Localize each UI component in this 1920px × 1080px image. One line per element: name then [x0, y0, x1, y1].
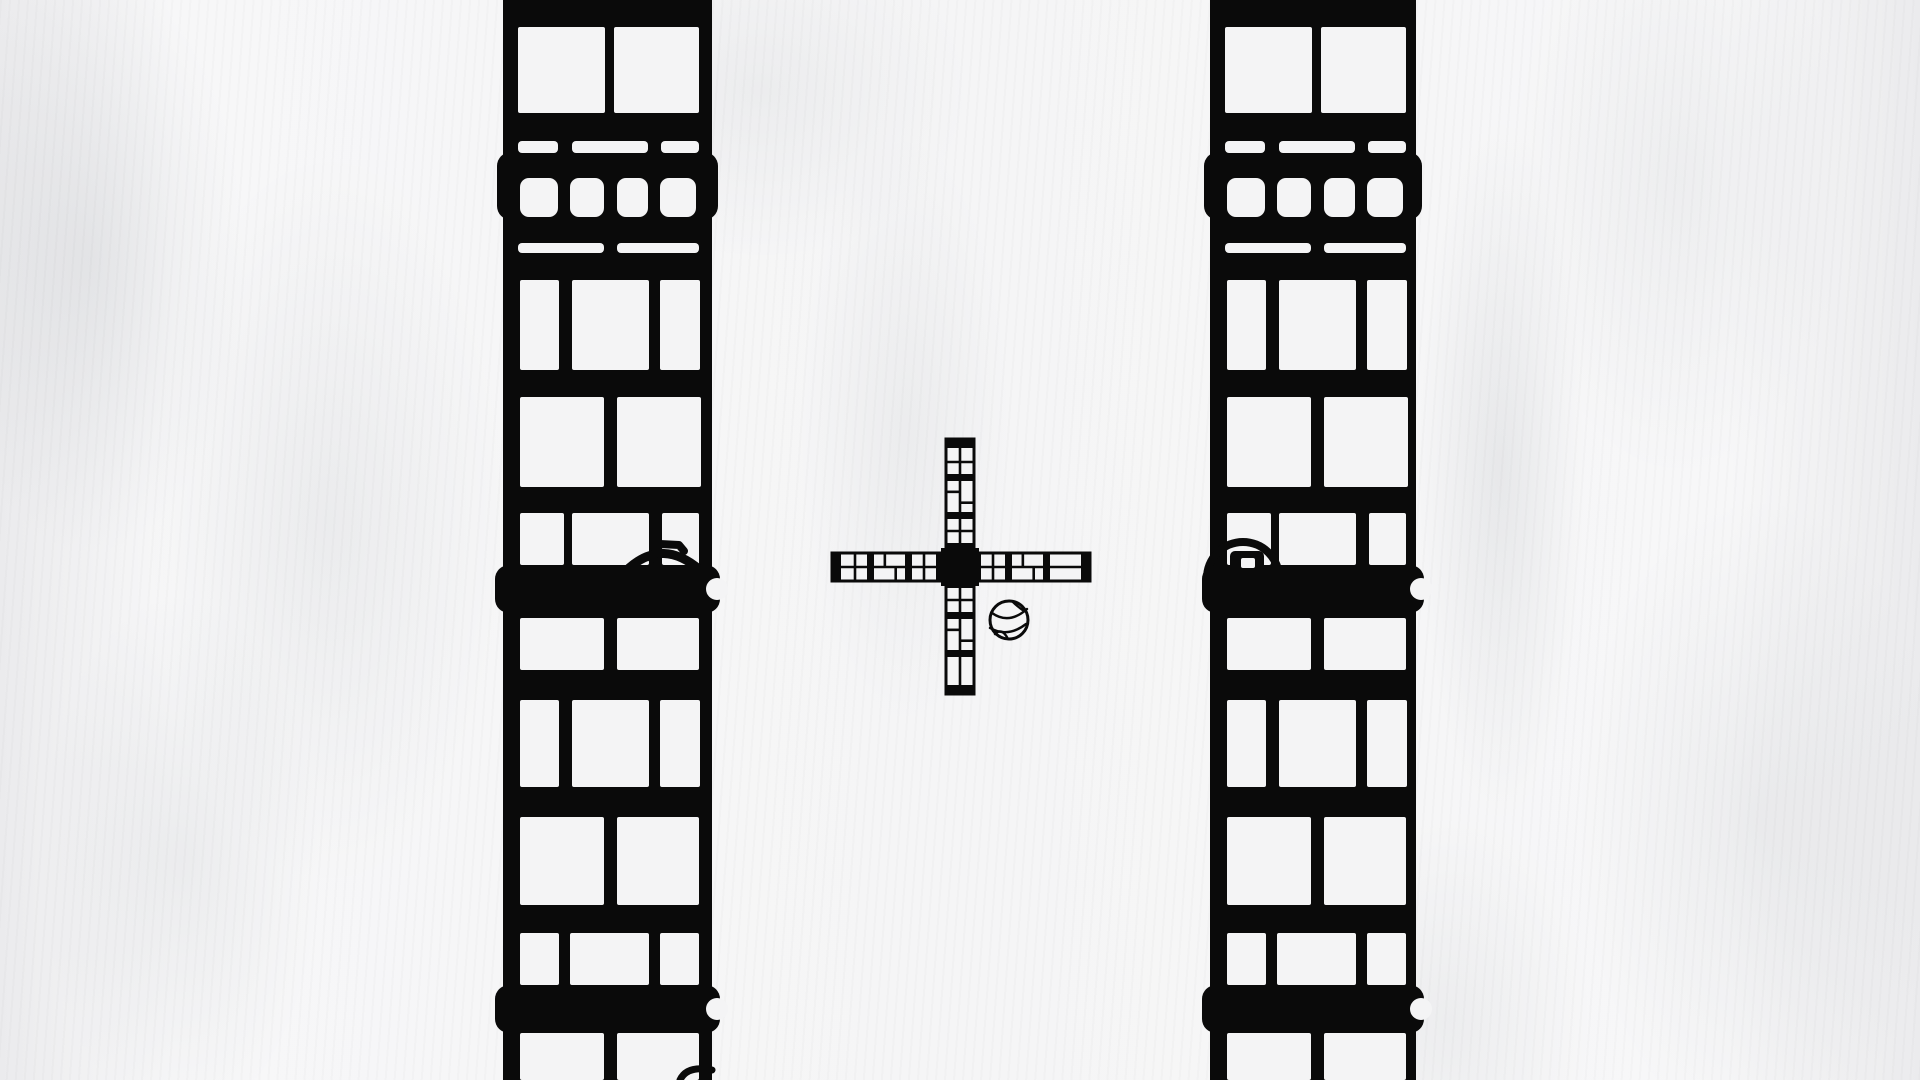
- right-tower-window: [1227, 280, 1266, 370]
- left-tower-window: [660, 933, 699, 985]
- left-tower-ledge-notch: [706, 578, 728, 600]
- right-tower-window: [1279, 280, 1356, 370]
- right-tower-window: [1321, 27, 1406, 113]
- right-tower-window: [1324, 243, 1406, 253]
- left-tower-window: [572, 280, 649, 370]
- right-tower-window: [1227, 933, 1266, 985]
- left-tower-window: [520, 513, 564, 565]
- left-tower-platform-ledge-2: [495, 985, 720, 1033]
- left-tower-window: [520, 1033, 604, 1080]
- left-tower-ledge-notch: [706, 998, 728, 1020]
- right-tower-window: [1227, 178, 1265, 217]
- right-tower-window: [1367, 178, 1403, 217]
- right-tower-window: [1324, 178, 1355, 217]
- right-tower-ledge-notch: [1410, 578, 1432, 600]
- left-tower-window: [518, 141, 558, 153]
- right-tower-window: [1227, 1033, 1311, 1080]
- right-tower-window: [1225, 243, 1311, 253]
- right-tower-window: [1279, 141, 1355, 153]
- right-tower-window: [1225, 27, 1312, 113]
- left-tower-window: [518, 27, 605, 113]
- left-tower-window: [617, 243, 699, 253]
- left-tower-window: [520, 817, 604, 905]
- left-tower-window: [572, 141, 648, 153]
- right-tower-ledge-notch: [1410, 998, 1432, 1020]
- right-tower-window: [1277, 933, 1356, 985]
- left-tower: [495, 0, 728, 1080]
- left-tower-platform-ledge-1: [495, 565, 720, 613]
- left-tower-window: [617, 618, 699, 670]
- right-tower-window: [1227, 618, 1311, 670]
- right-tower-window: [1367, 700, 1407, 787]
- porthole-knob-highlight: [1241, 558, 1255, 568]
- left-tower-window: [520, 933, 559, 985]
- game-scene: [0, 0, 1920, 1080]
- left-tower-window: [520, 618, 604, 670]
- left-tower-window: [570, 178, 604, 217]
- right-tower-window: [1324, 817, 1406, 905]
- right-tower-window: [1368, 141, 1406, 153]
- left-tower-window: [660, 178, 696, 217]
- right-tower-window: [1277, 178, 1311, 217]
- left-tower-window: [570, 933, 649, 985]
- right-tower-window: [1324, 618, 1406, 670]
- right-tower-window: [1324, 397, 1408, 487]
- left-tower-window: [661, 141, 699, 153]
- left-tower-window: [660, 280, 700, 370]
- left-tower-window: [617, 817, 699, 905]
- right-tower-window: [1324, 1033, 1406, 1080]
- game-viewport[interactable]: [0, 0, 1920, 1080]
- left-tower-window: [518, 243, 604, 253]
- right-tower: [1202, 0, 1432, 1080]
- windmill-obstacle: [832, 439, 1090, 694]
- left-tower-window: [617, 178, 648, 217]
- right-tower-window: [1227, 397, 1311, 487]
- left-tower-window: [660, 700, 700, 787]
- right-tower-window: [1369, 513, 1406, 565]
- right-tower-window: [1227, 817, 1311, 905]
- left-tower-window: [614, 27, 699, 113]
- right-tower-platform-ledge-2: [1202, 985, 1424, 1033]
- left-tower-window: [572, 700, 649, 787]
- basketball: [990, 601, 1028, 639]
- windmill-hub: [941, 548, 979, 586]
- right-tower-window: [1279, 700, 1356, 787]
- right-tower-window: [1367, 280, 1407, 370]
- right-tower-window: [1225, 141, 1265, 153]
- left-tower-window: [617, 397, 701, 487]
- right-tower-window: [1227, 700, 1266, 787]
- left-tower-window: [520, 700, 559, 787]
- left-tower-window: [520, 178, 558, 217]
- left-tower-window: [520, 397, 604, 487]
- right-tower-window: [1367, 933, 1406, 985]
- left-tower-window: [520, 280, 559, 370]
- right-tower-window: [1279, 513, 1356, 565]
